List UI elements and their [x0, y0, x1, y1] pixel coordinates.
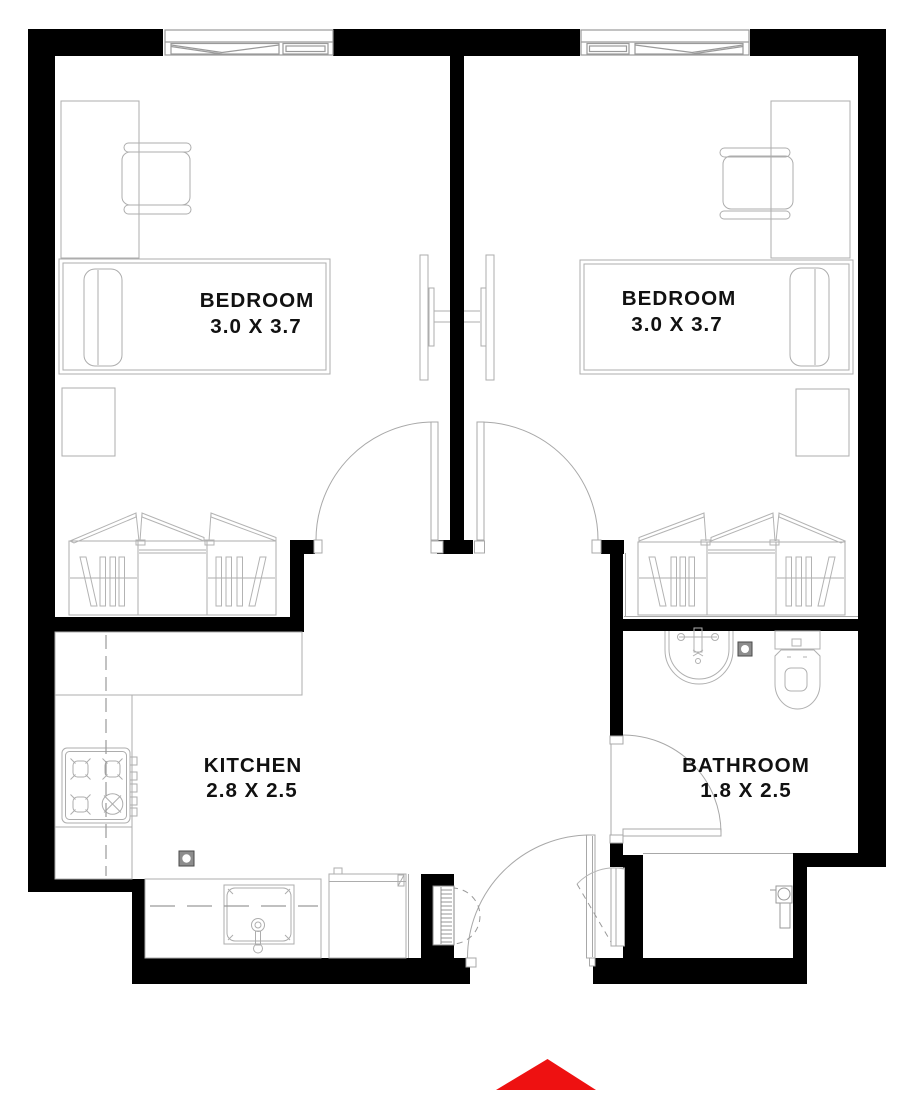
svg-text:BEDROOM: BEDROOM [200, 289, 315, 312]
svg-text:BEDROOM: BEDROOM [622, 287, 737, 310]
svg-text:3.0 X 3.7: 3.0 X 3.7 [210, 315, 301, 338]
svg-text:KITCHEN: KITCHEN [204, 754, 303, 777]
svg-text:2.8 X 2.5: 2.8 X 2.5 [206, 779, 297, 802]
svg-text:3.0 X 3.7: 3.0 X 3.7 [631, 313, 722, 336]
svg-text:1.8 X 2.5: 1.8 X 2.5 [700, 779, 791, 802]
svg-text:BATHROOM: BATHROOM [682, 754, 810, 777]
